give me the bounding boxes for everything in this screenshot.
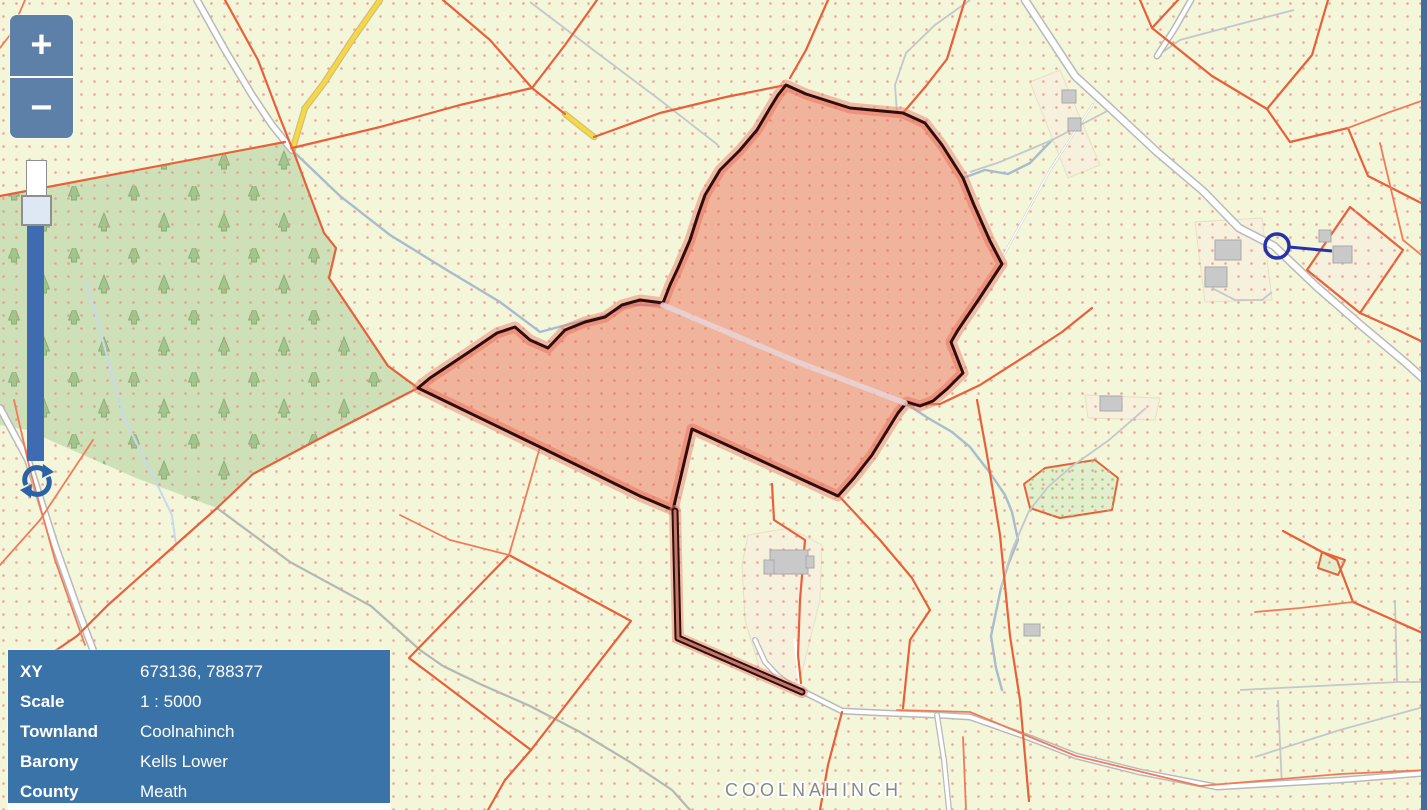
info-label: County xyxy=(8,782,140,802)
zoom-control: + − xyxy=(10,15,73,138)
refresh-button[interactable] xyxy=(17,461,57,501)
map-viewport[interactable]: COOLNAHINCH + − XY 673136, 788377 Scale xyxy=(0,0,1427,810)
info-row-xy: XY 673136, 788377 xyxy=(8,657,390,687)
info-value: 673136, 788377 xyxy=(140,662,390,682)
info-row-townland: Townland Coolnahinch xyxy=(8,717,390,747)
info-panel-footer xyxy=(8,803,390,810)
zoom-out-button[interactable]: − xyxy=(10,78,73,139)
zoom-slider-upper-track[interactable] xyxy=(26,160,47,200)
info-value: Kells Lower xyxy=(140,752,390,772)
info-value: Coolnahinch xyxy=(140,722,390,742)
feature-info-panel: XY 673136, 788377 Scale 1 : 5000 Townlan… xyxy=(8,650,390,810)
info-value: 1 : 5000 xyxy=(140,692,390,712)
info-value: Meath xyxy=(140,782,390,802)
info-label: Scale xyxy=(8,692,140,712)
refresh-icon xyxy=(17,461,57,501)
info-label: Barony xyxy=(8,752,140,772)
zoom-in-button[interactable]: + xyxy=(10,15,73,76)
townland-name-label: COOLNAHINCH xyxy=(725,780,902,800)
info-label: XY xyxy=(8,662,140,682)
info-row-barony: Barony Kells Lower xyxy=(8,747,390,777)
right-panel-edge[interactable] xyxy=(1421,0,1427,810)
info-row-scale: Scale 1 : 5000 xyxy=(8,687,390,717)
zoom-slider-track[interactable] xyxy=(27,221,44,461)
zoom-slider-handle[interactable] xyxy=(21,195,52,226)
info-label: Townland xyxy=(8,722,140,742)
